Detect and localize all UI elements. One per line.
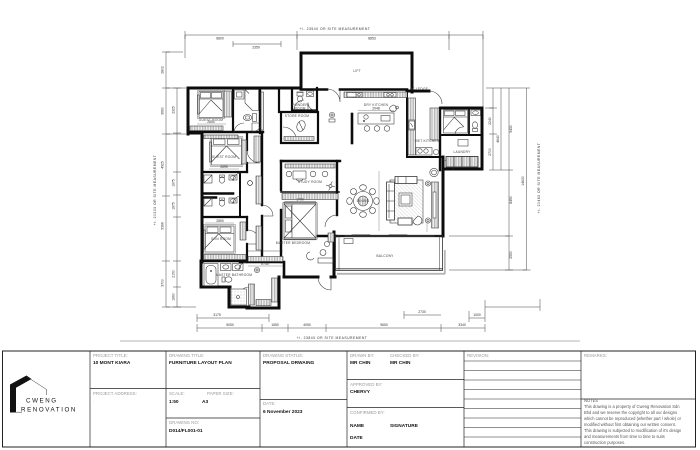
svg-text:NAME: NAME	[350, 423, 365, 429]
svg-text:8490: 8490	[509, 196, 513, 204]
svg-text:PAPER SIZE:: PAPER SIZE:	[207, 391, 234, 396]
svg-text:ROOM: ROOM	[294, 106, 305, 110]
svg-text:1675: 1675	[172, 179, 176, 187]
svg-text:MR CHIN: MR CHIN	[390, 360, 411, 366]
svg-text:A3: A3	[202, 399, 208, 405]
svg-text:RENOVATION: RENOVATION	[21, 407, 77, 414]
svg-text:4925: 4925	[161, 161, 165, 169]
svg-text:8853: 8853	[368, 37, 376, 41]
svg-text:PROJECT ADDRESS:: PROJECT ADDRESS:	[93, 391, 137, 396]
svg-text:GUEST ROOM: GUEST ROOM	[212, 155, 237, 159]
svg-text:.: .	[93, 398, 94, 403]
svg-text:CHECKED BY:: CHECKED BY:	[390, 353, 420, 358]
svg-text:SIGNATURE: SIGNATURE	[390, 423, 419, 429]
svg-text:GUEST ROOM: GUEST ROOM	[199, 118, 224, 122]
svg-text:2325: 2325	[172, 106, 176, 114]
svg-text:2730: 2730	[418, 310, 426, 314]
svg-text:+/- 23540 OR SITE MEASUREMENT: +/- 23540 OR SITE MEASUREMENT	[300, 27, 371, 31]
svg-text:and measurements from time to: and measurements from time to time to su…	[584, 434, 665, 439]
svg-text:3175: 3175	[213, 313, 221, 317]
svg-text:NOTES: NOTES	[584, 398, 598, 403]
svg-text:2802: 2802	[161, 66, 165, 74]
svg-text:DRAWING STATUS:: DRAWING STATUS:	[263, 353, 303, 358]
svg-text:14630: 14630	[521, 176, 525, 186]
svg-text:APPROVED BY:: APPROVED BY:	[350, 382, 382, 387]
svg-text:1000: 1000	[473, 313, 481, 317]
svg-text:STORE ROOM: STORE ROOM	[285, 114, 310, 118]
svg-text:5366: 5366	[161, 222, 165, 230]
svg-text:+/- 20333 OR SITE MEASUREMENT: +/- 20333 OR SITE MEASUREMENT	[153, 155, 157, 226]
svg-text:1660: 1660	[172, 293, 176, 301]
svg-text:1:50: 1:50	[169, 399, 179, 405]
svg-text:LAUNDRY: LAUNDRY	[453, 150, 471, 154]
svg-text:DATE: DATE	[350, 435, 364, 441]
svg-text:REMARKS:: REMARKS:	[584, 353, 607, 358]
svg-text:which cannot be reproduced (wh: which cannot be reproduced (whether part…	[584, 416, 682, 421]
svg-text:PROPOSAL DRWAING: PROPOSAL DRWAING	[263, 360, 315, 366]
svg-text:DRAWN BY:: DRAWN BY:	[350, 353, 374, 358]
svg-text:DATE:: DATE:	[263, 401, 276, 406]
svg-text:AC LEDGE: AC LEDGE	[410, 87, 429, 91]
svg-text:5050: 5050	[226, 323, 234, 327]
svg-text:2690: 2690	[220, 165, 228, 169]
svg-text:2750: 2750	[261, 262, 269, 266]
svg-text:+/- 20483 OR SITE MEASUREMENT: +/- 20483 OR SITE MEASUREMENT	[537, 143, 541, 214]
svg-text:CONFIRMED BY:: CONFIRMED BY:	[350, 410, 385, 415]
svg-text:4050: 4050	[303, 323, 311, 327]
svg-text:MASTER BEDROOM: MASTER BEDROOM	[276, 241, 311, 245]
svg-text:REVISION:: REVISION:	[467, 353, 489, 358]
svg-text:3660: 3660	[161, 107, 165, 115]
svg-text:2850: 2850	[216, 219, 224, 223]
svg-text:1550: 1550	[271, 323, 279, 327]
svg-text:DRAWING TITLE:: DRAWING TITLE:	[169, 353, 204, 358]
svg-text:SON ROOM: SON ROOM	[211, 237, 231, 241]
svg-text:1700: 1700	[296, 198, 304, 202]
svg-text:3700: 3700	[161, 279, 165, 287]
svg-text:MASTER BATHROOM: MASTER BATHROOM	[216, 273, 253, 277]
svg-text:2350: 2350	[252, 46, 260, 50]
svg-text:9650: 9650	[380, 323, 388, 327]
svg-text:This drawing is subjected to m: This drawing is subjected to modificatio…	[584, 428, 682, 433]
svg-text:+/- 23840 OR SITE MEASUREMENT: +/- 23840 OR SITE MEASUREMENT	[297, 336, 368, 340]
svg-text:FURNITURE LAYOUT PLAN: FURNITURE LAYOUT PLAN	[169, 360, 232, 366]
svg-text:CWENG: CWENG	[26, 398, 58, 405]
svg-text:WET KITCHEN: WET KITCHEN	[415, 139, 440, 143]
svg-text:2550: 2550	[509, 251, 513, 259]
svg-text:5430: 5430	[509, 125, 513, 133]
svg-text:2700: 2700	[488, 148, 492, 156]
svg-text:CHERVY: CHERVY	[350, 389, 371, 395]
svg-text:6 November 2023: 6 November 2023	[263, 409, 303, 415]
svg-text:2150: 2150	[172, 270, 176, 278]
svg-text:4640: 4640	[496, 135, 500, 143]
svg-text:6800: 6800	[216, 37, 224, 41]
svg-text:BALCONY: BALCONY	[376, 254, 394, 258]
svg-text:3340: 3340	[458, 323, 466, 327]
svg-text:This drawing is a property of: This drawing is a property of Cweng Reno…	[584, 404, 680, 409]
svg-text:1675: 1675	[172, 202, 176, 210]
svg-text:2240: 2240	[488, 117, 492, 125]
svg-text:10 MONT KIARA: 10 MONT KIARA	[93, 360, 131, 366]
svg-text:construction purposes.: construction purposes.	[584, 440, 625, 445]
svg-text:DRY KITCHEN: DRY KITCHEN	[364, 103, 389, 107]
svg-text:PROJECT TITLE:: PROJECT TITLE:	[93, 353, 128, 358]
svg-text:LIFT: LIFT	[353, 69, 361, 73]
svg-text:modified without first obtaini: modified without first obtaining our wri…	[584, 422, 676, 427]
svg-text:DRAWING NO:: DRAWING NO:	[169, 420, 199, 425]
svg-text:DINING: DINING	[357, 199, 370, 203]
svg-text:MR CHIN: MR CHIN	[350, 360, 371, 366]
svg-text:D014/FL001-01: D014/FL001-01	[169, 428, 203, 434]
svg-text:STUDY ROOM: STUDY ROOM	[298, 180, 322, 184]
svg-text:2048: 2048	[372, 107, 380, 111]
svg-text:Bhd and we reserve the copyrig: Bhd and we reserve the copyright to all …	[584, 410, 677, 415]
svg-text:SCALE:: SCALE:	[169, 391, 185, 396]
